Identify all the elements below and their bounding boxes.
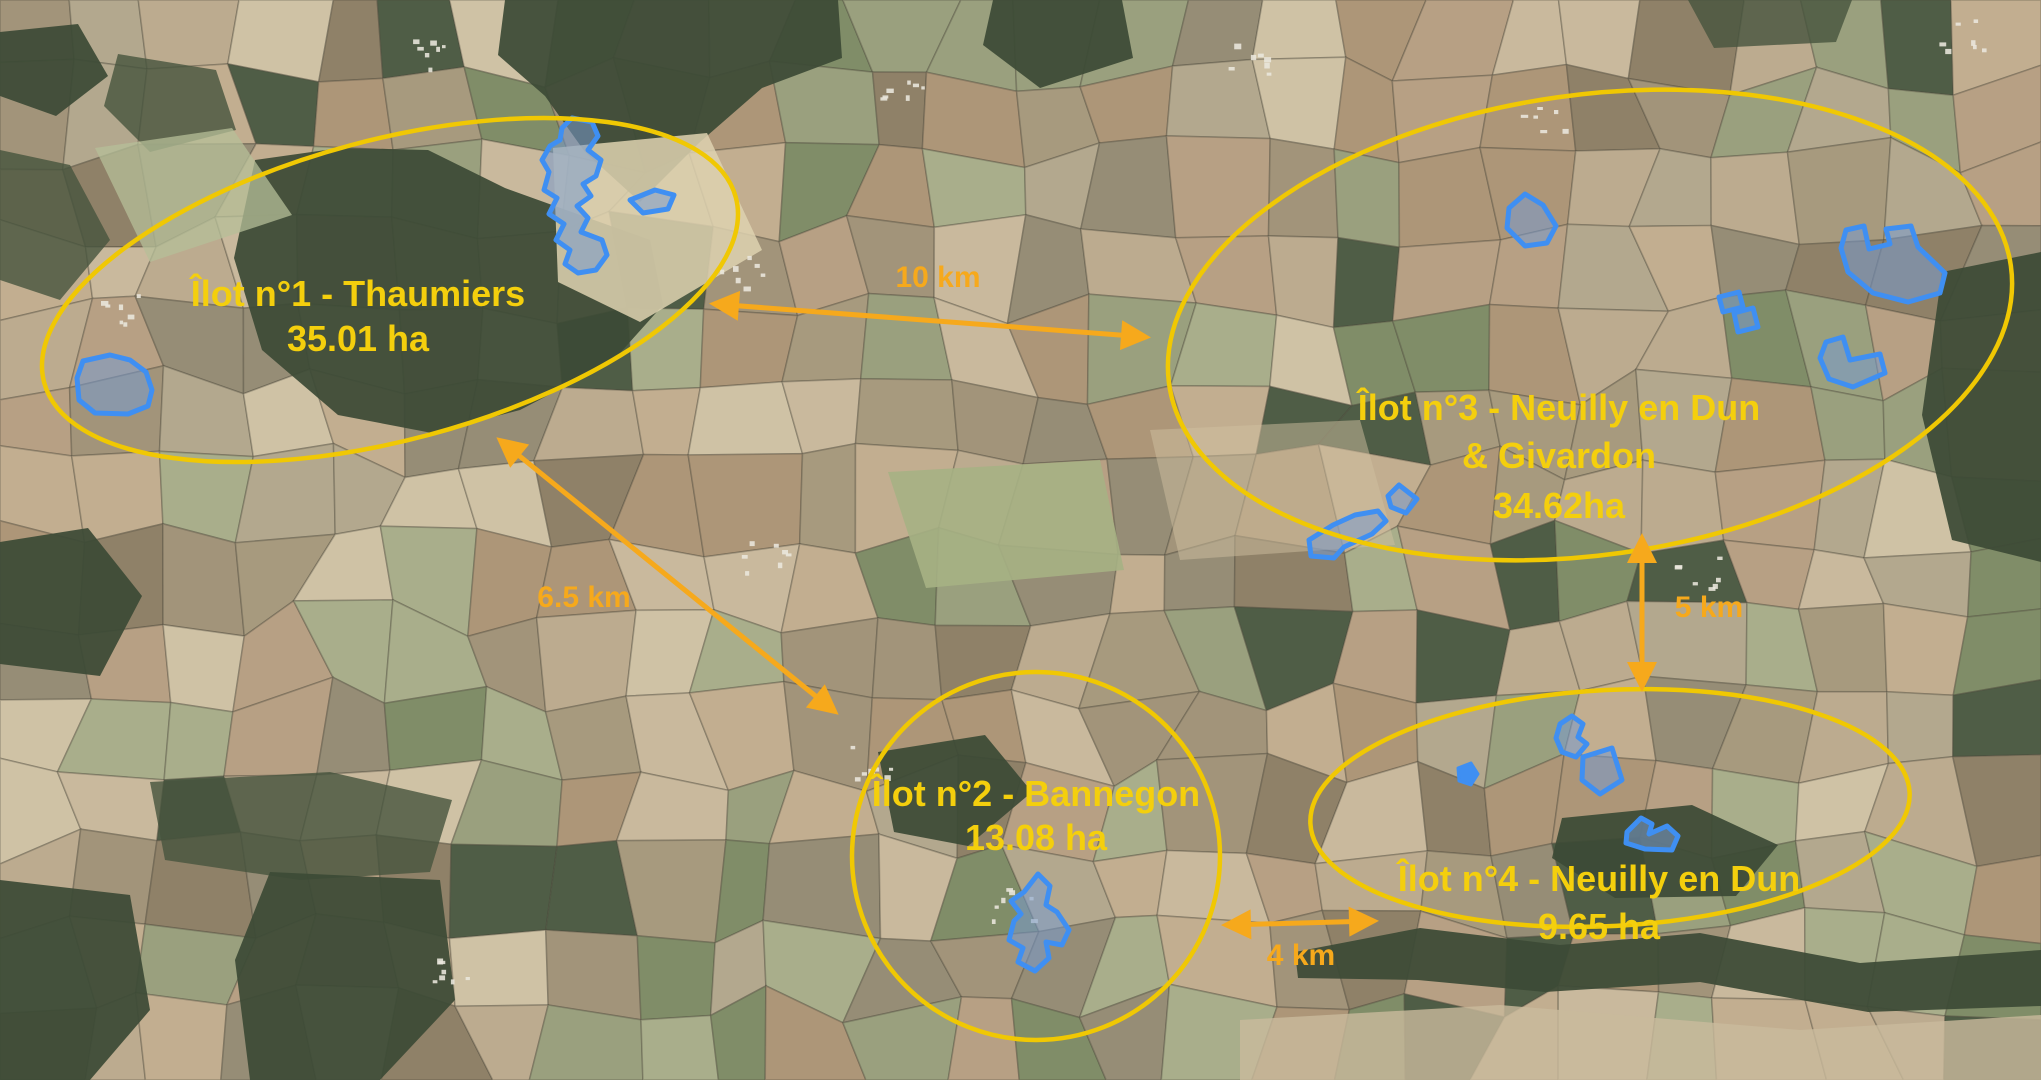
village-dot — [992, 919, 996, 924]
village-dot — [1001, 898, 1005, 903]
village-dot — [436, 47, 440, 52]
village-dot — [120, 321, 124, 325]
village-dot — [1563, 129, 1569, 134]
village-dot — [428, 68, 432, 73]
village-dot — [995, 906, 999, 909]
village-dot — [786, 553, 792, 556]
distance-label-5km: 5 km — [1675, 591, 1743, 624]
satellite-map-figure: 10 km 6.5 km 5 km 4 km Îlot n°1 - Thaumi… — [0, 0, 2041, 1080]
village-dot — [747, 256, 751, 260]
field-cell — [637, 936, 715, 1020]
field-cell — [1252, 0, 1346, 60]
zone-label-ilot-3-line-2: & Givardon — [1462, 435, 1656, 476]
village-dot — [128, 315, 135, 320]
zone-label-ilot-2-line-2: 13.08 ha — [965, 817, 1108, 858]
field-cell — [1881, 0, 1953, 95]
village-dot — [851, 746, 856, 749]
field-cell — [1269, 236, 1339, 328]
village-dot — [855, 777, 861, 781]
village-dot — [430, 41, 437, 46]
zone-label-ilot-3-line-1: Îlot n°3 - Neuilly en Dun — [1356, 386, 1760, 428]
zone-label-ilot-1-line-2: 35.01 ha — [287, 318, 430, 359]
distance-label-4km: 4 km — [1267, 939, 1335, 972]
village-dot — [720, 270, 724, 275]
village-dot — [451, 979, 455, 984]
forest-patch — [1688, 0, 1852, 48]
village-dot — [1264, 63, 1270, 69]
field-cell — [163, 625, 244, 712]
zone-label-ilot-3-line-3: 34.62ha — [1493, 485, 1626, 526]
village-dot — [1537, 107, 1543, 110]
village-dot — [442, 45, 446, 48]
zone-label-ilot-2-line-1: Îlot n°2 - Bannegon — [870, 772, 1200, 814]
village-dot — [438, 961, 445, 964]
zone-label-ilot-1-line-1: Îlot n°1 - Thaumiers — [189, 272, 525, 314]
village-dot — [1675, 565, 1682, 569]
village-dot — [1009, 890, 1015, 895]
field-cell — [450, 930, 549, 1006]
village-dot — [1973, 45, 1977, 49]
field-cell — [1887, 692, 1953, 764]
zone-label-ilot-4-line-2: 9.65 ha — [1538, 906, 1661, 947]
field-cell — [164, 703, 233, 780]
field-cell — [800, 444, 856, 553]
field-cell — [377, 0, 464, 78]
village-dot — [433, 980, 438, 983]
field-cell — [1167, 136, 1271, 238]
village-dot — [1554, 110, 1558, 114]
village-dot — [413, 39, 419, 44]
village-dot — [101, 301, 108, 306]
village-dot — [1939, 42, 1946, 46]
field-cell — [1269, 139, 1339, 238]
village-dot — [442, 970, 447, 975]
field-cell — [856, 379, 959, 451]
village-dot — [907, 81, 911, 85]
village-dot — [761, 274, 766, 277]
village-dot — [750, 541, 755, 546]
field-cell — [138, 0, 239, 69]
field-cell — [0, 388, 72, 456]
field-cell — [136, 993, 227, 1080]
field-cell — [641, 1016, 719, 1080]
village-dot — [913, 84, 919, 88]
field-cell — [1173, 0, 1263, 66]
village-dot — [742, 555, 748, 559]
village-dot — [137, 294, 141, 298]
village-dot — [1264, 57, 1271, 62]
village-dot — [123, 322, 127, 326]
village-dot — [880, 97, 887, 100]
village-dot — [745, 571, 749, 576]
village-dot — [425, 53, 429, 57]
field-cell — [1334, 238, 1400, 328]
village-dot — [1982, 48, 1987, 52]
village-dot — [1956, 23, 1961, 26]
village-dot — [1693, 582, 1698, 585]
village-dot — [1974, 19, 1979, 23]
field-cell — [1334, 149, 1399, 247]
village-dot — [417, 47, 424, 51]
field-cell — [1788, 138, 1891, 245]
village-dot — [1234, 44, 1241, 50]
field-cell — [546, 696, 641, 780]
village-dot — [1540, 130, 1547, 133]
village-dot — [755, 264, 760, 268]
map-canvas: 10 km 6.5 km 5 km 4 km Îlot n°1 - Thaumi… — [0, 0, 2041, 1080]
village-dot — [778, 563, 782, 569]
village-dot — [886, 89, 893, 93]
village-dot — [1258, 54, 1264, 58]
village-dot — [1267, 73, 1272, 76]
parcel-polygon — [1734, 308, 1758, 332]
village-dot — [119, 305, 123, 311]
village-dot — [1716, 578, 1721, 583]
village-dot — [733, 266, 739, 272]
field-cell — [872, 618, 942, 700]
field-cell — [688, 454, 802, 557]
village-dot — [1533, 116, 1538, 119]
village-dot — [1945, 49, 1951, 54]
village-dot — [921, 86, 925, 89]
village-dot — [1229, 67, 1235, 71]
village-dot — [1521, 115, 1528, 118]
village-dot — [1717, 557, 1722, 560]
field-cell — [450, 844, 558, 938]
village-dot — [439, 975, 445, 980]
village-dot — [906, 95, 910, 101]
field-cell — [873, 72, 927, 149]
village-dot — [774, 544, 779, 548]
village-dot — [889, 768, 893, 771]
village-dot — [1251, 55, 1256, 60]
village-dot — [744, 287, 751, 292]
distance-label-6-5km: 6.5 km — [537, 581, 630, 614]
zone-label-ilot-4-line-1: Îlot n°4 - Neuilly en Dun — [1396, 857, 1800, 899]
field-cell — [1715, 460, 1825, 550]
field-cell — [1964, 855, 2041, 943]
village-dot — [736, 278, 741, 284]
village-dot — [862, 772, 867, 776]
meadow-field — [888, 460, 1124, 588]
distance-label-10km: 10 km — [895, 261, 980, 294]
village-dot — [466, 977, 470, 980]
